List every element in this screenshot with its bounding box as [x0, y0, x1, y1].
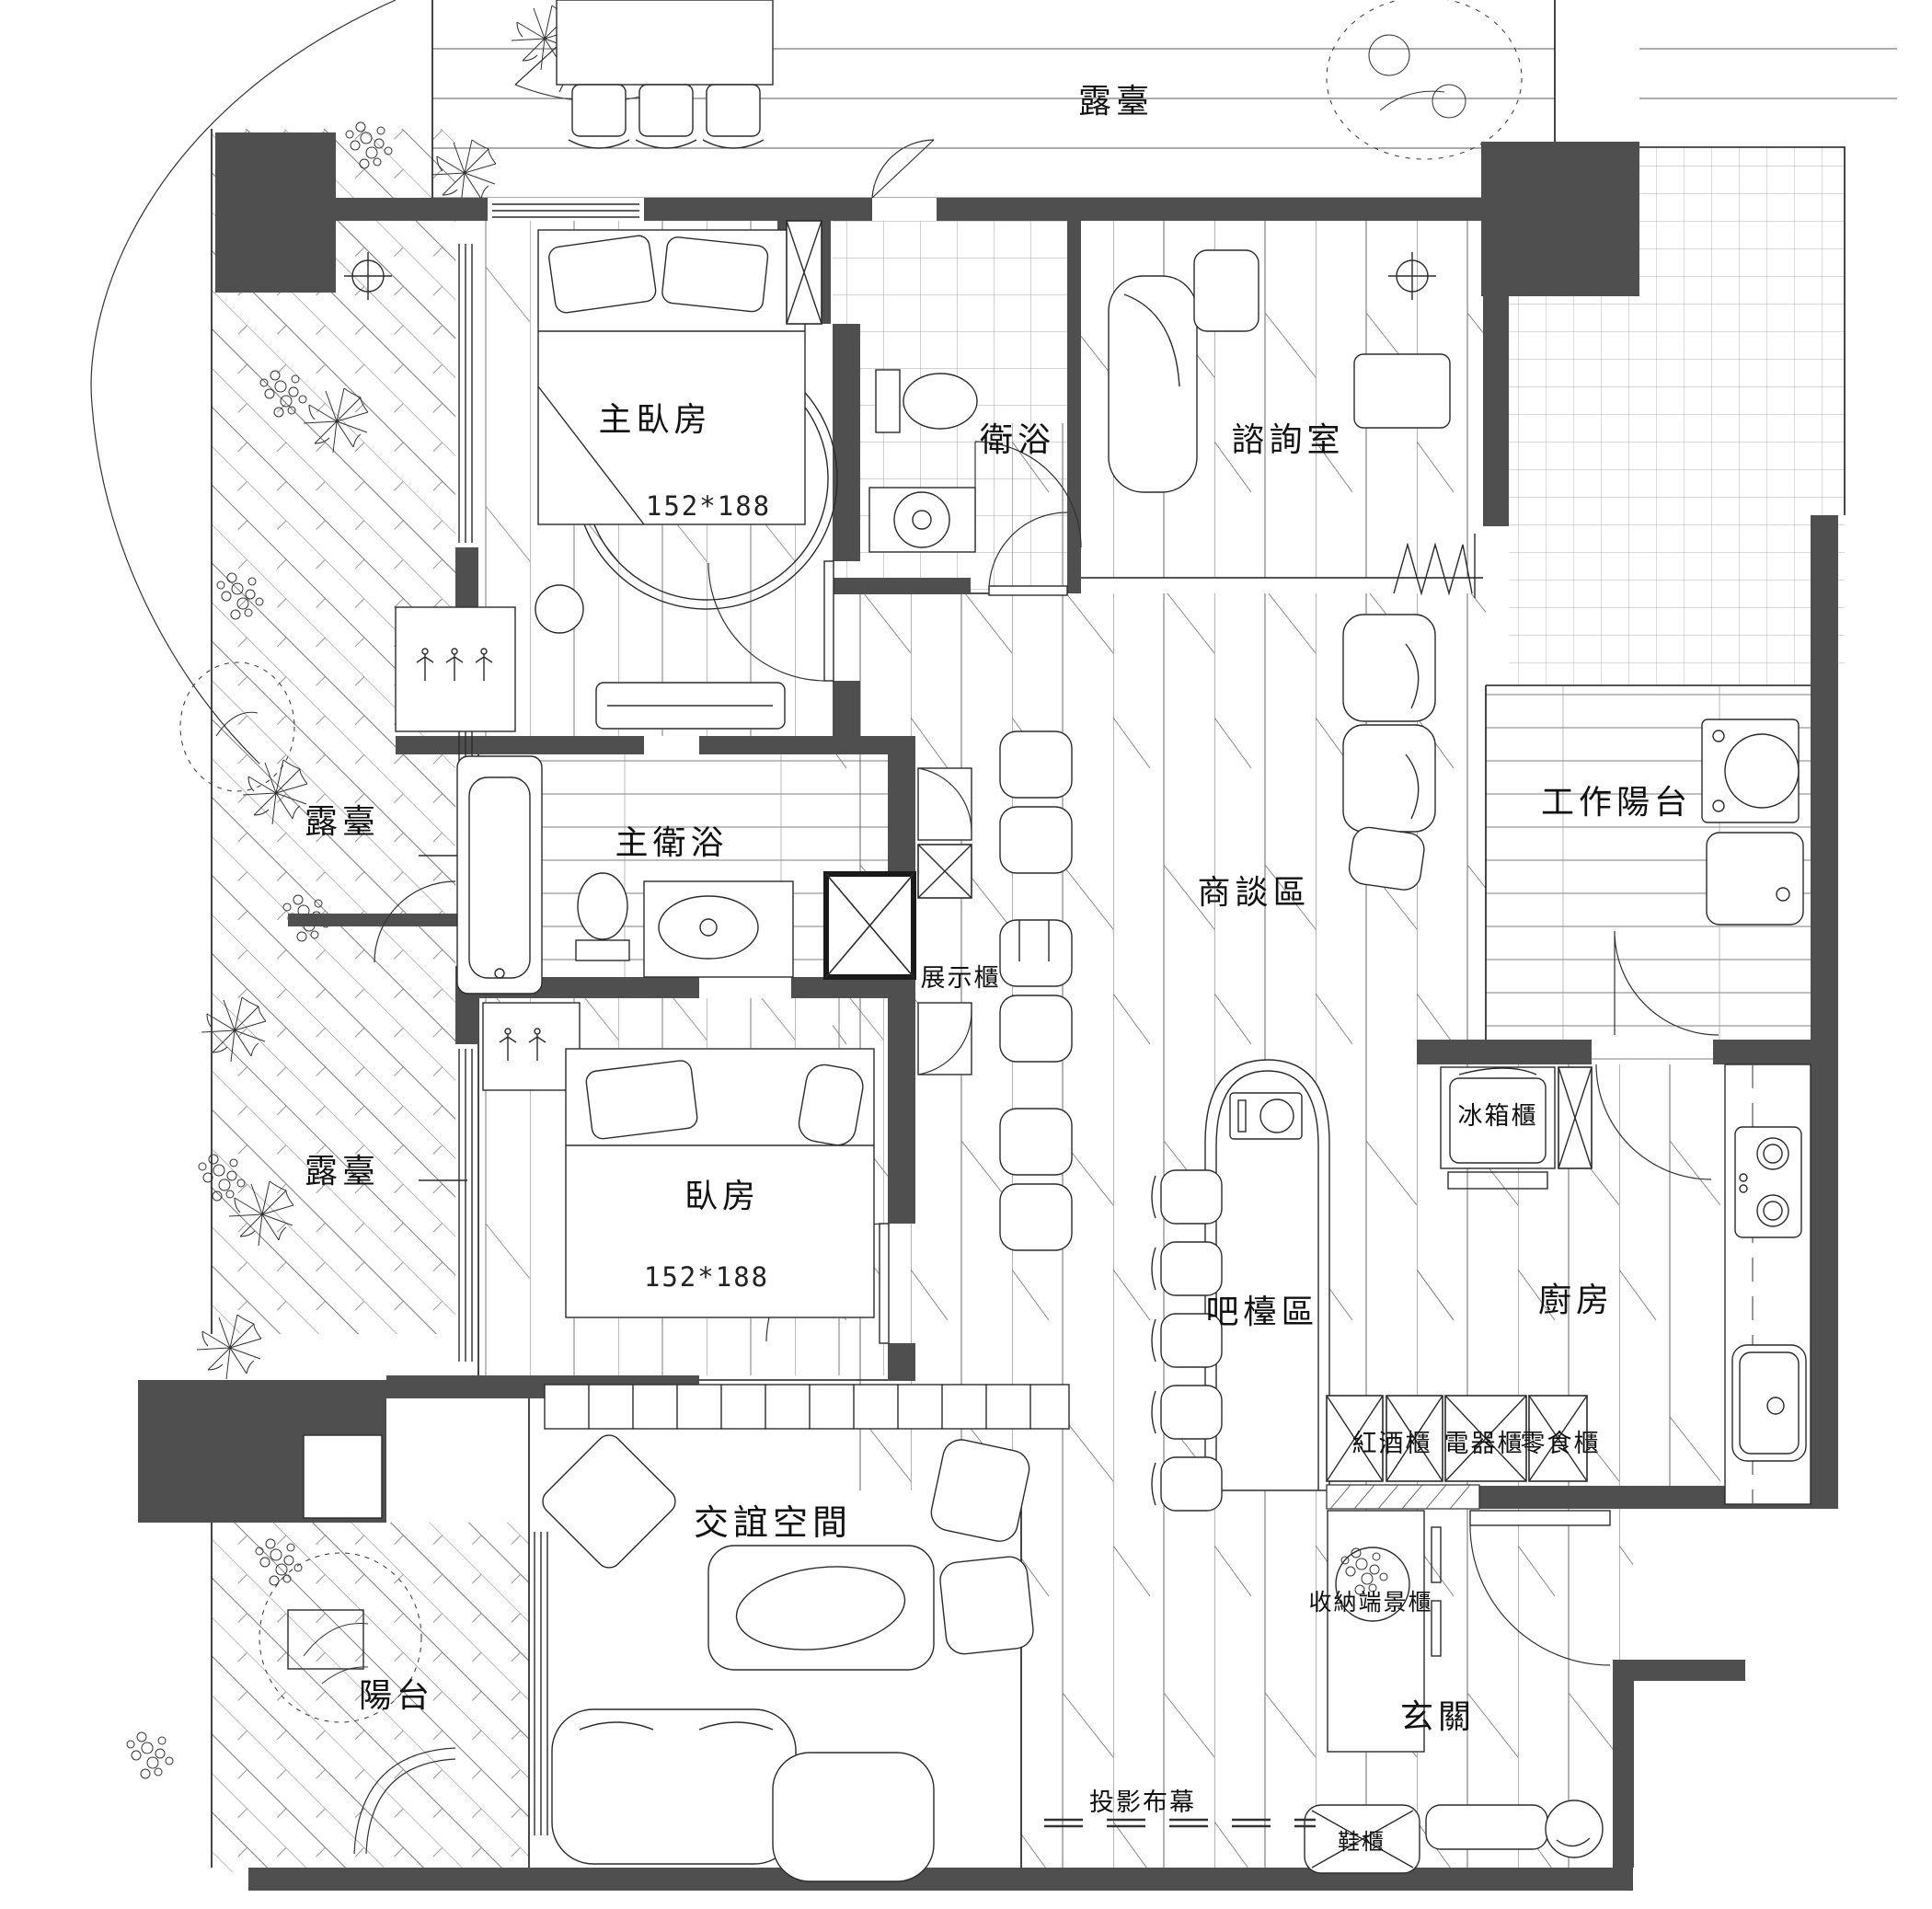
toilet-tank — [876, 370, 900, 432]
column-top-right — [1481, 142, 1639, 296]
floor-cushion — [928, 1436, 1033, 1545]
toilet-bowl — [903, 374, 977, 429]
floor-cushion — [938, 1555, 1035, 1655]
label-terrace-top: 露臺 — [1078, 83, 1154, 121]
south-wall — [248, 1868, 1633, 1891]
bar-stool — [1161, 1457, 1222, 1511]
label-master-bath: 主衛浴 — [615, 824, 728, 862]
social-west-window — [535, 1532, 547, 1835]
label-discussion-area: 商談區 — [1197, 874, 1310, 912]
stool — [1000, 731, 1072, 798]
floor-plan-canvas: 露臺 主臥房 152*188 衛浴 諮詢室 露臺 主衛浴 工作陽台 商談區 展示… — [0, 0, 1932, 1909]
pillow — [585, 1060, 698, 1140]
pebbles-icon — [127, 1732, 173, 1778]
floor-cushion — [537, 1430, 681, 1573]
label-terrace-left-upper: 露臺 — [305, 803, 380, 841]
label-projector-screen: 投影布幕 — [1089, 1788, 1196, 1817]
toilet-tank — [576, 940, 629, 960]
terrace-top-right-deck — [1639, 0, 1897, 147]
sofa-seat — [1343, 615, 1435, 721]
stool — [1000, 1109, 1072, 1175]
ottoman — [1347, 825, 1426, 891]
bar-stool — [1161, 1386, 1222, 1439]
laundry-sink — [1707, 833, 1803, 925]
entry-bench — [1426, 1805, 1547, 1849]
lounge-chair — [1109, 276, 1197, 492]
kitchen-fixtures — [1725, 1064, 1811, 1504]
label-social-space: 交誼空間 — [694, 1502, 852, 1543]
label-fridge-cabinet: 冰箱櫃 — [1458, 1102, 1538, 1131]
sofa-chaise — [773, 1753, 934, 1881]
low-ledge — [1327, 1485, 1479, 1509]
master-bedroom-north-window — [492, 204, 639, 217]
stool — [1000, 807, 1072, 873]
pillow — [547, 235, 657, 315]
sofa-seat — [1343, 725, 1435, 832]
vanity-counter — [644, 881, 793, 977]
label-terrace-left-lower: 露臺 — [305, 1153, 380, 1190]
stool — [535, 585, 583, 633]
washing-machine — [1702, 719, 1799, 822]
label-display-cabinet: 展示櫃 — [921, 964, 1001, 993]
label-balcony: 陽台 — [359, 1677, 434, 1715]
window-box — [304, 1435, 382, 1518]
label-shoe-cabinet: 鞋櫃 — [1338, 1829, 1386, 1855]
label-bar-area: 吧檯區 — [1205, 1294, 1318, 1331]
coffee-table — [708, 1546, 934, 1670]
long-bench — [545, 1385, 1069, 1429]
label-master-bed-dim: 152*188 — [646, 490, 771, 522]
pillow — [661, 236, 769, 313]
toilet-bowl — [578, 873, 627, 939]
label-consult-room: 諮詢室 — [1231, 421, 1344, 459]
wardrobe — [396, 607, 515, 731]
label-bathroom: 衛浴 — [980, 421, 1055, 459]
label-master-bedroom: 主臥房 — [598, 401, 711, 439]
label-bedroom: 臥房 — [684, 1178, 760, 1215]
floor-plan-drawing: 露臺 主臥房 152*188 衛浴 諮詢室 露臺 主衛浴 工作陽台 商談區 展示… — [0, 0, 1932, 1909]
cooktop — [1735, 1127, 1801, 1237]
bedroom-west-window — [459, 1049, 472, 1362]
stool — [1000, 1184, 1072, 1250]
bar-stool — [1161, 1170, 1222, 1224]
kitchen-sink — [1732, 1345, 1806, 1461]
east-wall — [1811, 515, 1838, 1509]
stool — [1000, 920, 1072, 986]
label-bedroom-bed-dim: 152*188 — [644, 1261, 769, 1293]
label-work-balcony: 工作陽台 — [1541, 784, 1692, 822]
vase — [1546, 1800, 1603, 1857]
label-kitchen: 廚房 — [1538, 1282, 1614, 1319]
desk — [1354, 354, 1450, 428]
wardrobe — [483, 1003, 580, 1090]
vanity-counter — [869, 488, 975, 552]
stool — [1000, 995, 1072, 1062]
side-table — [1194, 250, 1259, 331]
label-wine-cabinet: 紅酒櫃 — [1352, 1430, 1432, 1458]
label-storage-cabinet: 收納端景櫃 — [1308, 1589, 1432, 1616]
label-entry: 玄關 — [1400, 1698, 1476, 1736]
bar-stool — [1161, 1242, 1222, 1295]
work-balcony-fixtures — [1702, 719, 1803, 925]
column-top-left — [215, 132, 336, 293]
label-snack-cabinet: 零食櫃 — [1521, 1430, 1601, 1458]
label-appliance-cabinet: 電器櫃 — [1444, 1430, 1524, 1458]
patio-table-and-chairs — [557, 0, 773, 148]
sofa — [552, 1709, 796, 1864]
